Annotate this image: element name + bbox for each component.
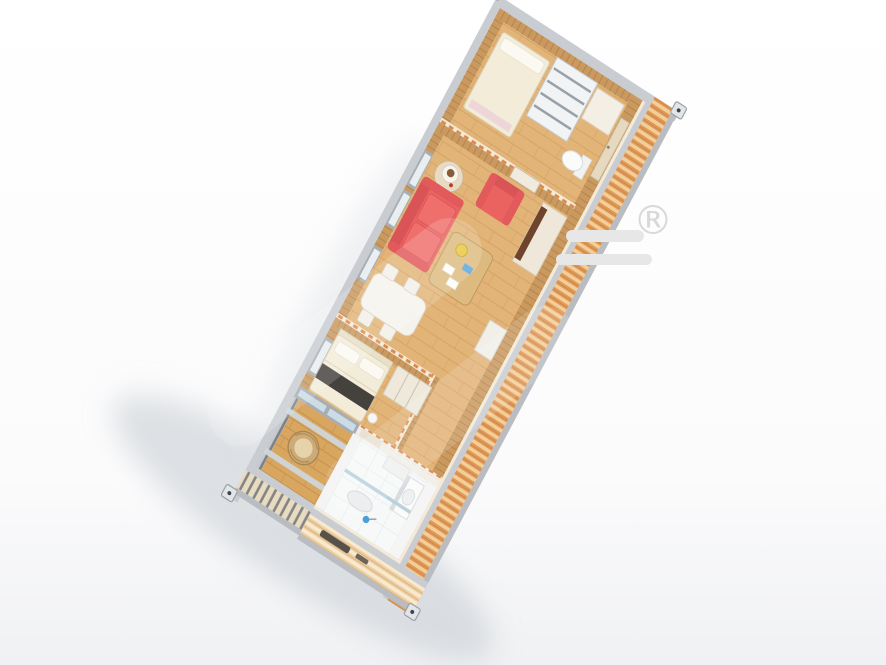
render-canvas: ®: [0, 0, 886, 665]
registered-trademark-watermark: ®: [633, 198, 673, 244]
watermark-bar: [556, 254, 652, 265]
container-house-render: ®: [0, 0, 886, 665]
